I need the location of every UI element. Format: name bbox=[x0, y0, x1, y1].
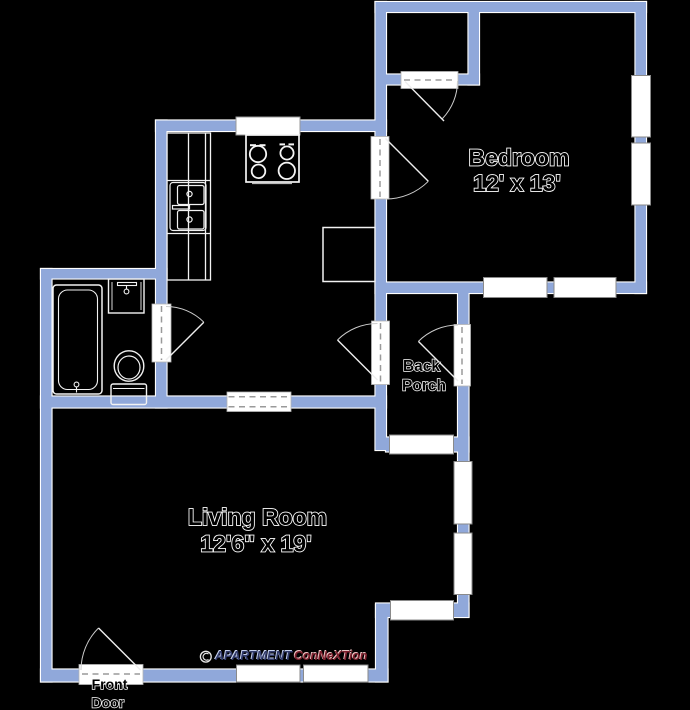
svg-text:APARTMENT: APARTMENT bbox=[214, 649, 293, 663]
svg-text:Living Room: Living Room bbox=[188, 504, 327, 530]
svg-text:ConNeXTion: ConNeXTion bbox=[294, 649, 368, 663]
svg-text:Porch: Porch bbox=[402, 378, 446, 395]
svg-text:Door: Door bbox=[91, 695, 124, 710]
svg-text:Bedroom: Bedroom bbox=[469, 144, 570, 170]
svg-text:Front: Front bbox=[92, 676, 128, 692]
svg-text:12' x 13': 12' x 13' bbox=[473, 170, 561, 196]
svg-text:Back: Back bbox=[403, 358, 440, 375]
svg-text:12'6" x 19': 12'6" x 19' bbox=[200, 530, 311, 556]
